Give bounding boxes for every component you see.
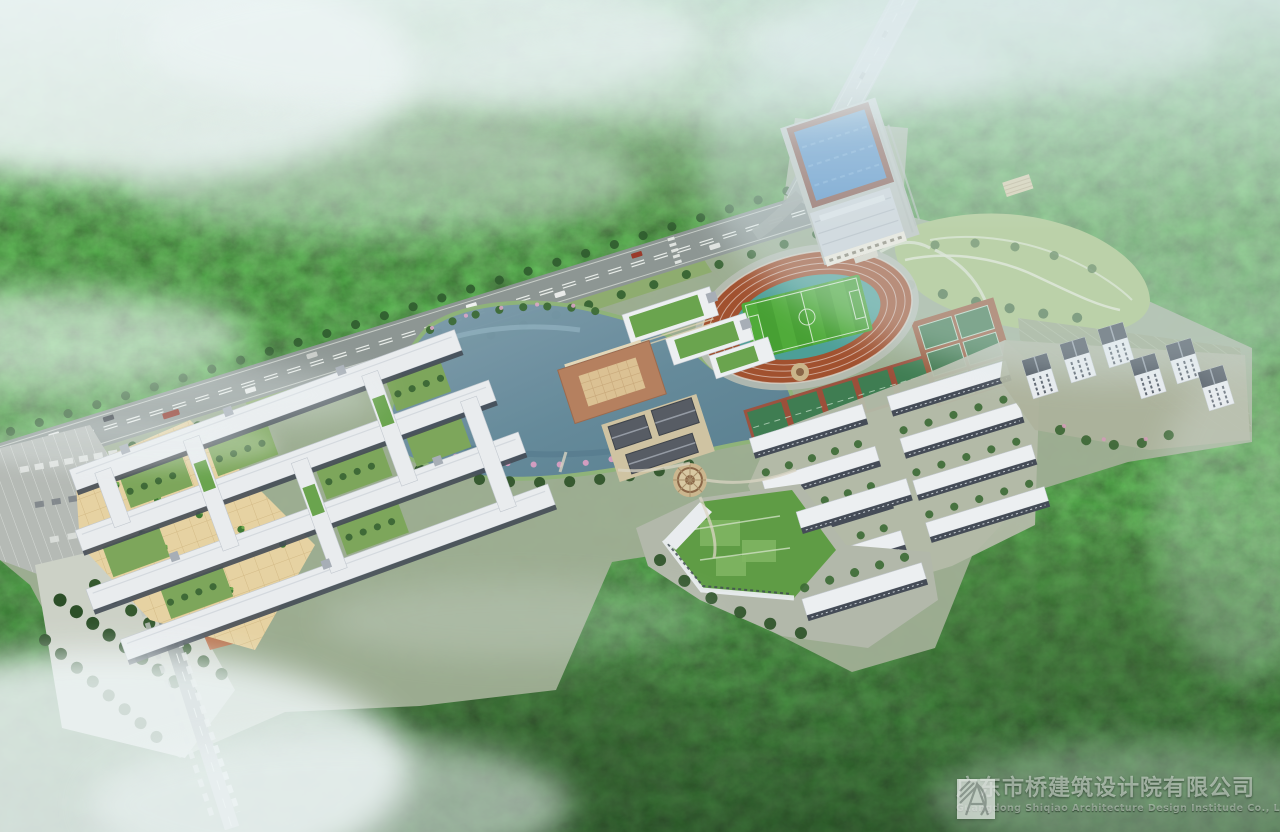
- company-watermark: 广东市桥建筑设计院有限公司 Guangdong Shiqiao Architec…: [956, 777, 1280, 814]
- company-name-en: Guangdong Shiqiao Architecture Design In…: [956, 803, 1280, 814]
- rendering-canvas: [0, 0, 1280, 832]
- circular-compass-plaza: [673, 463, 707, 497]
- company-name-cn: 广东市桥建筑设计院有限公司: [956, 777, 1280, 801]
- company-logo-icon: [956, 777, 996, 821]
- aerial-campus-rendering: 广东市桥建筑设计院有限公司 Guangdong Shiqiao Architec…: [0, 0, 1280, 832]
